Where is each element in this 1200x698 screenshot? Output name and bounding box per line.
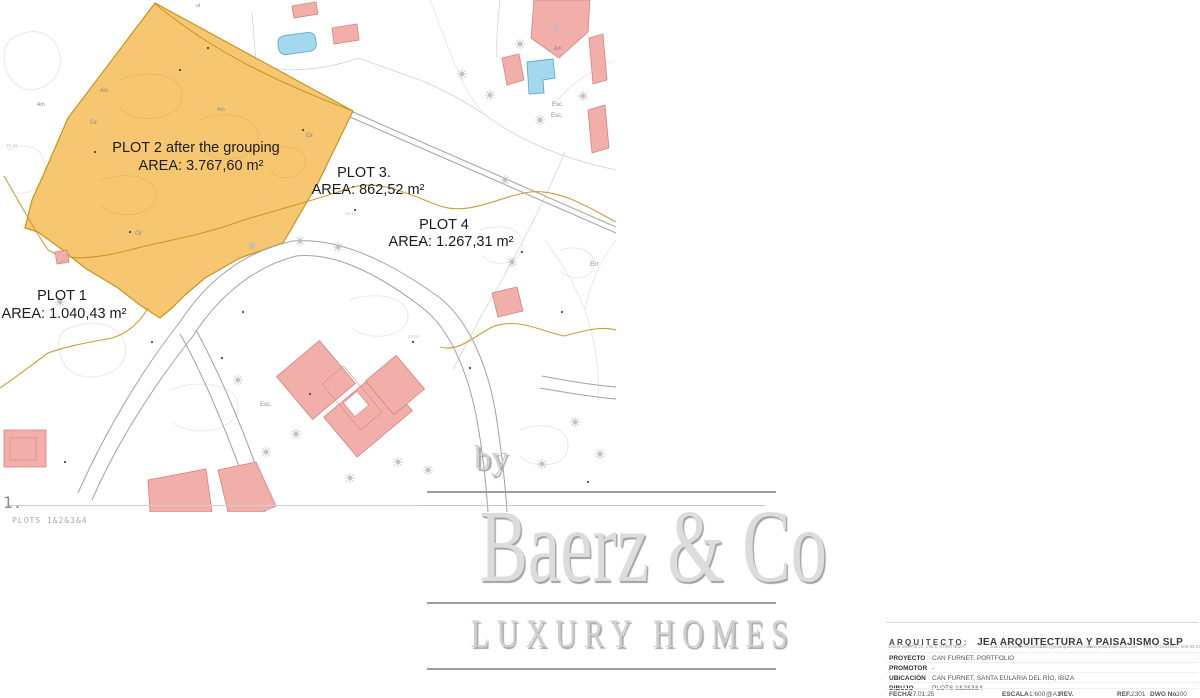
map-label-gr: Gr <box>90 119 98 126</box>
elevation-label: 22.13 <box>345 211 357 216</box>
map-label-arb: Arb <box>554 46 562 52</box>
map-label-esc: Esc. <box>551 113 563 119</box>
pool <box>527 59 555 94</box>
map-label-esc: Esc. <box>260 402 272 408</box>
plot2-name: PLOT 2 after the grouping <box>112 140 279 156</box>
plot4-name: PLOT 4 <box>419 217 469 233</box>
drawing-sheet: ut Esc. Esc. Err Esc. Gr Gr Gr Arb Arb A… <box>0 0 1200 698</box>
map-label-arb: Arb <box>100 88 108 94</box>
building <box>589 34 607 84</box>
building <box>502 54 524 85</box>
escala-label: ESCALA <box>1002 691 1029 698</box>
row-value: - <box>932 665 934 672</box>
plot4-area: AREA: 1.267,31 m² <box>389 234 514 250</box>
map-label-err: Err <box>590 261 600 268</box>
dwg-value: 300 <box>1176 691 1187 698</box>
pool <box>277 31 317 55</box>
architect-contact-line: Carrer des Pla 28, Vila 6, 07800 IBIZA J… <box>886 644 1198 650</box>
contact-person: Juan Echevarría Arquitecto <box>990 644 1044 649</box>
contact-address: Carrer des Pla 28, Vila 6, 07800 IBIZA <box>888 644 964 649</box>
logo-by-text: by <box>474 442 508 476</box>
plot1-area: AREA: 1.040,43 m² <box>2 306 127 322</box>
drawing-subtitle: PLOTS 1&2&3&4 <box>12 516 88 525</box>
title-block: ARQUITECTO: JEA ARQUITECTURA Y PAISAJISM… <box>886 622 1198 698</box>
elevation-label: 24.65 <box>408 334 420 339</box>
title-row-fecha: FECHA 27.01.25 ESCALA 1:600 @A1 REV. REF… <box>886 688 1198 698</box>
contact-phone: Tfno. 971634584 / 600 50 2740 <box>1143 644 1200 649</box>
building <box>332 24 359 44</box>
elevation-label: 25.44 <box>6 143 18 148</box>
drawing-number-rule <box>9 505 445 506</box>
drawing-number: 1. <box>3 493 22 512</box>
contact-web: www.jeaarquitectura.com <box>1087 644 1137 649</box>
row-label: PROMOTOR <box>889 665 927 672</box>
map-label-esc: Esc. <box>552 102 564 108</box>
row-label: PROYECTO <box>889 655 925 662</box>
plot3-name: PLOT 3. <box>337 165 391 181</box>
site-plan-map: ut Esc. Esc. Err Esc. Gr Gr Gr Arb Arb A… <box>0 0 616 512</box>
row-value: CAN FURNET, PORTFOLIO <box>932 655 1014 662</box>
map-label-gr: Gr <box>306 132 314 139</box>
contact-email: mail@jeaarquitectura.com <box>1040 644 1092 649</box>
elevation-label: 20.56 <box>22 461 34 466</box>
map-label-ut: ut <box>196 3 201 9</box>
building <box>55 250 69 264</box>
main-house-complex <box>277 341 425 458</box>
ref-label: REF. <box>1117 691 1131 698</box>
logo-rule-mid <box>427 602 776 604</box>
plot3-area: AREA: 862,52 m² <box>312 182 425 198</box>
map-label-arb: Arb <box>37 102 45 108</box>
map-label-gr: Gr <box>135 230 143 237</box>
logo-brand-name: Baerz & Co <box>479 495 723 599</box>
logo-tagline: LUXURY HOMES <box>471 614 733 654</box>
row-label: UBICACIÓN <box>889 675 926 682</box>
map-label-arb: Arb <box>217 107 225 113</box>
ref-value: 2301 <box>1131 691 1145 698</box>
building <box>492 287 523 317</box>
plot1-name: PLOT 1 <box>37 288 87 304</box>
building <box>292 2 318 18</box>
building <box>588 105 609 153</box>
plot2-area: AREA: 3.767,60 m² <box>139 158 264 174</box>
escala-value: 1:600 <box>1029 691 1045 698</box>
logo-rule-bottom <box>427 668 776 670</box>
fecha-value: 27.01.25 <box>909 691 934 698</box>
dwg-label: DWG No. <box>1150 691 1178 698</box>
row-value: CAN FURNET, SANTA EULARIA DEL RÍO, IBIZA <box>932 675 1074 682</box>
rev-label: REV. <box>1059 691 1074 698</box>
